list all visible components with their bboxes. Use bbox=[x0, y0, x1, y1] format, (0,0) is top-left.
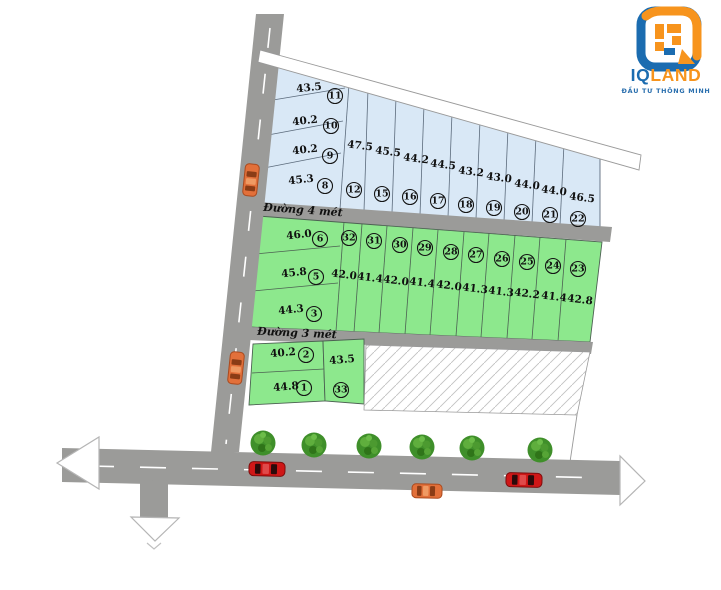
plot-number: 18 bbox=[459, 200, 473, 211]
plot-number: 30 bbox=[393, 240, 407, 251]
plot-number: 31 bbox=[367, 236, 380, 247]
tree-icon bbox=[460, 436, 485, 461]
car-icon bbox=[249, 462, 285, 477]
tree-icon bbox=[528, 438, 553, 463]
car-icon bbox=[242, 163, 259, 196]
iqland-logo-text: IQLAND bbox=[631, 65, 702, 85]
plot-number: 12 bbox=[347, 185, 360, 196]
plot-number: 23 bbox=[571, 264, 584, 275]
plot-number: 19 bbox=[487, 203, 501, 214]
plot-number: 1 bbox=[301, 383, 308, 394]
plot-number: 15 bbox=[375, 189, 388, 200]
iqland-logo: IQLAND ĐẦU TƯ THÔNG MINH bbox=[622, 11, 711, 95]
plot-number: 10 bbox=[324, 121, 338, 132]
boundary-line-right bbox=[570, 415, 577, 462]
tree-icon bbox=[251, 431, 276, 456]
plot-number: 32 bbox=[342, 233, 355, 244]
plot-number: 28 bbox=[444, 247, 458, 258]
plot-number: 9 bbox=[327, 151, 334, 162]
tree-icon bbox=[410, 435, 435, 460]
tree-icon bbox=[302, 433, 327, 458]
map-canvas: Đường 4 mét Đường 3 mét 43.5 11 40.2 10 … bbox=[0, 0, 721, 590]
plot-number: 29 bbox=[418, 243, 432, 254]
direction-arrow-right bbox=[620, 456, 645, 505]
plot-number: 5 bbox=[313, 272, 320, 283]
plot-number: 27 bbox=[469, 250, 482, 261]
iqland-logo-tagline: ĐẦU TƯ THÔNG MINH bbox=[622, 85, 711, 95]
car-icon bbox=[412, 484, 442, 499]
plot-number: 26 bbox=[495, 254, 509, 265]
plot-number: 22 bbox=[571, 214, 584, 225]
plot-number: 8 bbox=[322, 181, 329, 192]
plot-area: 40.2 bbox=[270, 346, 297, 360]
car-icon bbox=[227, 351, 244, 384]
road-stub-south bbox=[140, 480, 168, 519]
land-subdivision-map: Đường 4 mét Đường 3 mét 43.5 11 40.2 10 … bbox=[0, 0, 721, 590]
plot-number: 25 bbox=[520, 257, 533, 268]
plot-number: 20 bbox=[515, 207, 529, 218]
chevron-down-icon bbox=[147, 543, 161, 549]
plot-number: 16 bbox=[403, 192, 417, 203]
plot-number: 6 bbox=[317, 234, 324, 245]
iqland-logo-icon bbox=[641, 11, 697, 67]
plot-area: 43.5 bbox=[329, 353, 356, 367]
plot-number: 33 bbox=[334, 385, 347, 396]
car-icon bbox=[506, 473, 542, 488]
tree-icon bbox=[357, 434, 382, 459]
plot-number: 21 bbox=[543, 210, 556, 221]
plot-number: 24 bbox=[546, 261, 560, 272]
hatched-reserved-area bbox=[364, 345, 590, 415]
plot-number: 2 bbox=[303, 350, 310, 361]
direction-arrow-down bbox=[131, 517, 179, 541]
plot-area: 44.8 bbox=[273, 380, 300, 394]
plot-number: 11 bbox=[328, 91, 341, 102]
plot-number: 17 bbox=[431, 196, 444, 207]
plot-number: 3 bbox=[311, 309, 318, 320]
